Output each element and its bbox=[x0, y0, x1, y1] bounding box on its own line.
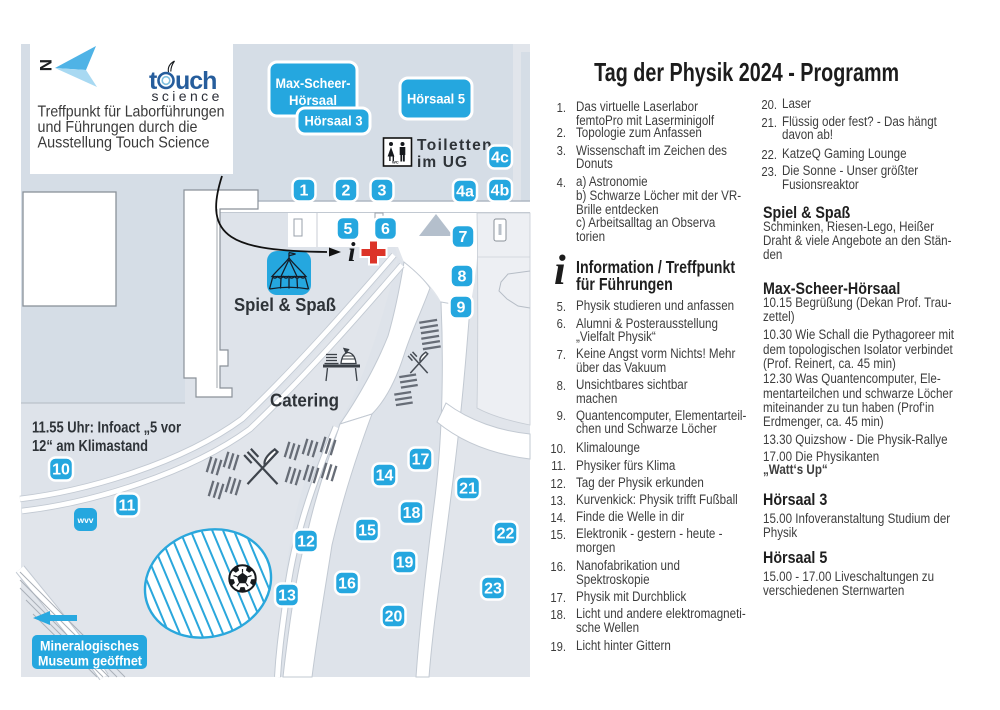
svg-text:16: 16 bbox=[338, 576, 356, 593]
svg-text:20: 20 bbox=[385, 609, 403, 626]
svg-text:15: 15 bbox=[358, 523, 376, 540]
svg-text:10: 10 bbox=[52, 462, 70, 479]
svg-text:Max-Scheer-: Max-Scheer- bbox=[276, 76, 351, 91]
svg-text:Hörsaal 5: Hörsaal 5 bbox=[407, 92, 465, 107]
svg-text:Spiel & Spaß: Spiel & Spaß bbox=[234, 295, 336, 315]
svg-text:Hörsaal: Hörsaal bbox=[289, 93, 337, 108]
svg-text:13: 13 bbox=[278, 588, 296, 605]
svg-text:Treffpunkt für Laborführungen: Treffpunkt für Laborführungen bbox=[38, 103, 225, 120]
svg-text:7: 7 bbox=[459, 229, 468, 246]
svg-text:Mineralogisches: Mineralogisches bbox=[40, 639, 139, 654]
svg-text:11.55 Uhr: Infoact „5 vor: 11.55 Uhr: Infoact „5 vor bbox=[32, 420, 181, 437]
svg-text:5: 5 bbox=[344, 221, 353, 238]
svg-text:11: 11 bbox=[119, 498, 136, 515]
svg-text:und Führungen durch die: und Führungen durch die bbox=[38, 119, 198, 136]
svg-text:wvv: wvv bbox=[76, 515, 93, 525]
svg-text:6: 6 bbox=[381, 221, 390, 238]
svg-text:23: 23 bbox=[484, 581, 502, 598]
svg-text:im UG: im UG bbox=[417, 154, 468, 171]
svg-text:Catering: Catering bbox=[270, 391, 339, 411]
svg-text:4b: 4b bbox=[491, 183, 510, 200]
svg-text:19: 19 bbox=[396, 555, 414, 572]
svg-text:14: 14 bbox=[376, 468, 394, 485]
svg-text:12: 12 bbox=[297, 534, 315, 551]
svg-text:3: 3 bbox=[378, 183, 387, 200]
svg-text:2: 2 bbox=[342, 183, 351, 200]
svg-text:22: 22 bbox=[497, 526, 515, 543]
svg-text:4a: 4a bbox=[456, 184, 474, 201]
svg-text:WC: WC bbox=[392, 160, 399, 165]
svg-text:17: 17 bbox=[412, 452, 430, 469]
svg-text:18: 18 bbox=[403, 505, 421, 522]
svg-text:i: i bbox=[348, 237, 356, 267]
svg-text:8: 8 bbox=[458, 269, 467, 286]
svg-text:science: science bbox=[152, 88, 223, 104]
svg-text:1: 1 bbox=[300, 183, 309, 200]
svg-text:12“ am Klimastand: 12“ am Klimastand bbox=[32, 438, 148, 455]
svg-text:4c: 4c bbox=[491, 150, 509, 167]
svg-text:21: 21 bbox=[459, 481, 477, 498]
svg-text:Ausstellung Touch Science: Ausstellung Touch Science bbox=[38, 135, 210, 152]
svg-text:Toiletten: Toiletten bbox=[417, 137, 493, 154]
svg-text:Museum geöffnet: Museum geöffnet bbox=[38, 654, 142, 669]
svg-text:9: 9 bbox=[457, 300, 466, 317]
svg-text:Hörsaal 3: Hörsaal 3 bbox=[305, 114, 363, 129]
svg-text:N: N bbox=[36, 59, 55, 71]
